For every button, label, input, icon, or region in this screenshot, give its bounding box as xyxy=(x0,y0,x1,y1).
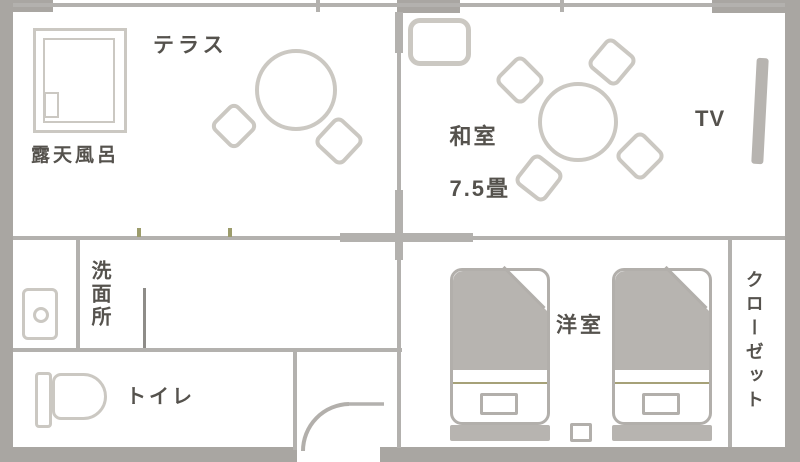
outer-wall-left xyxy=(0,0,13,462)
terrace-window-tick-2 xyxy=(228,228,232,237)
western-room-label: 洋室 xyxy=(556,314,604,338)
japanese-table-icon xyxy=(538,82,618,162)
sink-basin-icon xyxy=(33,307,49,323)
open-air-bath-step-icon xyxy=(44,92,59,118)
top-wall-tick-1 xyxy=(316,0,320,12)
bed-icon xyxy=(450,268,550,441)
center-wall-thick-top xyxy=(395,12,403,53)
bed-headboard xyxy=(612,425,712,441)
japanese-room-size: 7.5畳 xyxy=(449,176,510,201)
floor-cushion-icon xyxy=(512,151,565,204)
bed-pillow xyxy=(642,393,680,415)
terrace-window-tick-1 xyxy=(137,228,141,237)
closet-wall xyxy=(728,239,732,447)
japanese-room-name: 和室 xyxy=(449,124,497,149)
terrace-table-icon xyxy=(255,49,337,131)
toilet-tank-icon xyxy=(35,372,52,428)
terrace-label: テラス xyxy=(153,34,228,58)
washroom-left-wall xyxy=(76,239,80,349)
entrance-left-wall xyxy=(293,351,297,450)
bed-sheet-line xyxy=(453,382,547,384)
tv-label: TV xyxy=(695,106,725,131)
toilet-label: トイレ xyxy=(126,386,195,409)
cabinet-icon xyxy=(408,18,471,66)
open-air-bath-label: 露天風呂 xyxy=(31,145,119,167)
washroom-label: 洗面所 xyxy=(87,260,110,329)
top-wall-tick-2 xyxy=(560,0,564,12)
nightstand-icon xyxy=(570,423,592,442)
center-wall-thin-bottom xyxy=(397,258,401,448)
mid-horizontal-wall-thick xyxy=(340,233,473,242)
floor-cushion-icon xyxy=(585,35,639,89)
outer-wall-bottom-right xyxy=(380,447,800,462)
tv-icon xyxy=(751,58,769,164)
center-wall-thick-lower xyxy=(395,190,403,260)
sanitary-horizontal-wall xyxy=(13,348,402,352)
bed-sheet-line xyxy=(615,382,709,384)
top-wall-line xyxy=(13,3,785,7)
outer-wall-right xyxy=(785,0,800,462)
floor-plan: テラス 露天風呂 和室 7.5畳 TV 洗面所 トイレ 洋室 クローゼット xyxy=(0,0,800,462)
toilet-bowl-icon xyxy=(52,373,107,420)
closet-label: クローゼット xyxy=(743,270,764,414)
floor-cushion-icon xyxy=(613,129,667,183)
terrace-stool-icon xyxy=(209,101,260,152)
bed-icon xyxy=(612,268,712,441)
washroom-divider-line xyxy=(143,288,146,348)
center-wall-thin-middle xyxy=(397,50,401,192)
japanese-room-label: 和室 7.5畳 xyxy=(417,98,510,228)
bed-pillow xyxy=(480,393,518,415)
outer-wall-bottom-left xyxy=(0,447,297,462)
bed-headboard xyxy=(450,425,550,441)
